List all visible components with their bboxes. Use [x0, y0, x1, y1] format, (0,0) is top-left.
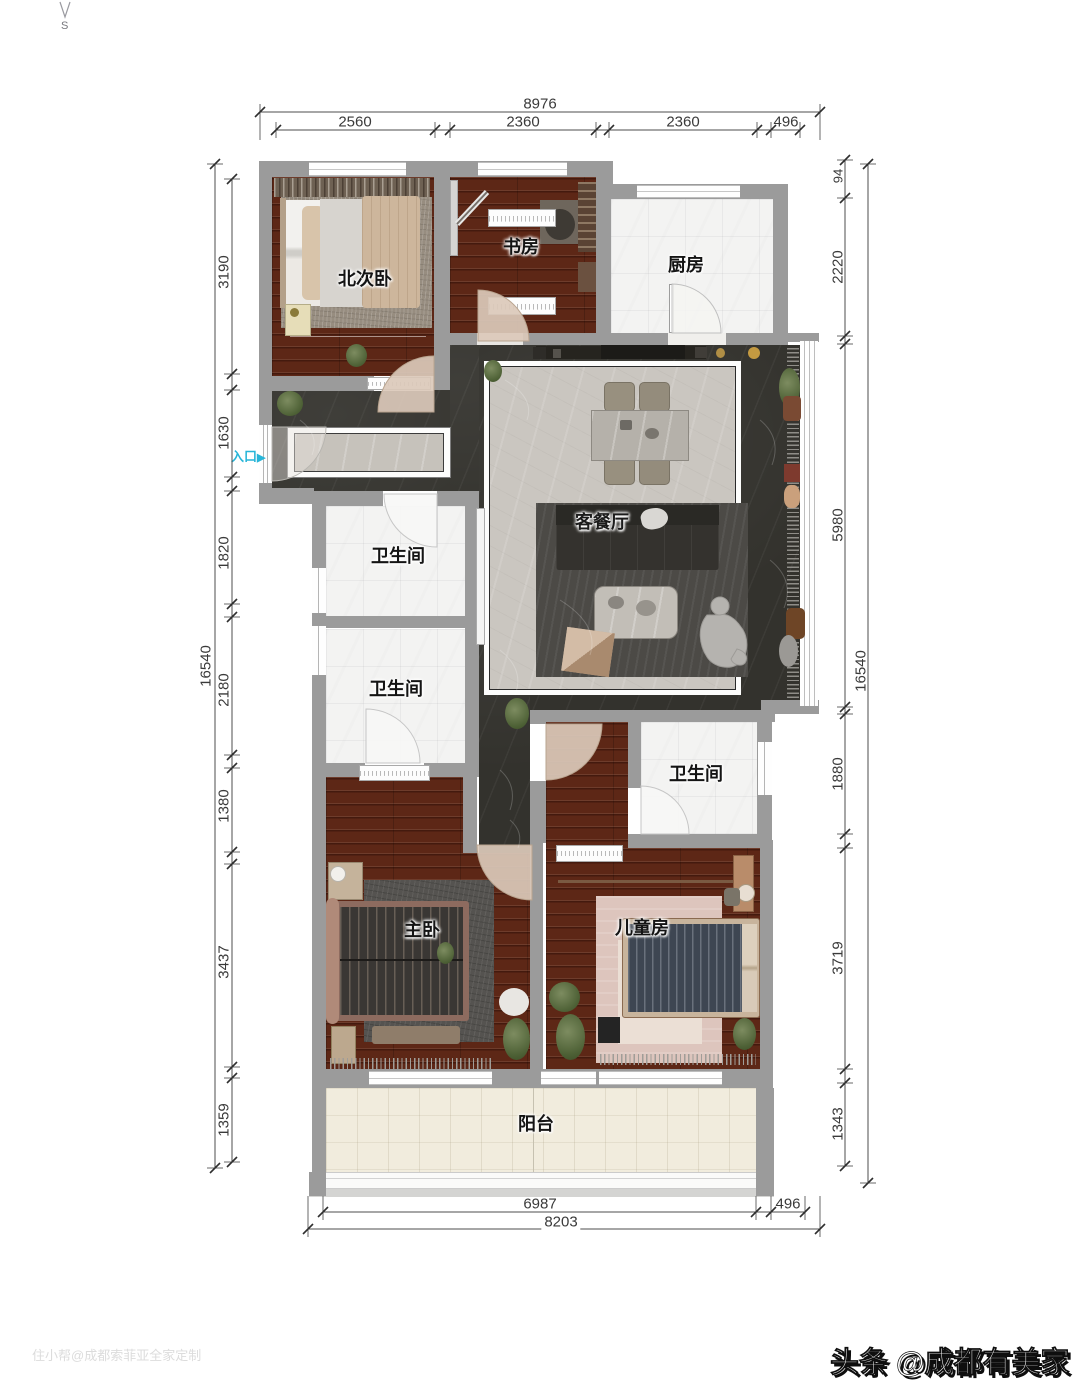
svg-text:S: S	[61, 20, 68, 32]
